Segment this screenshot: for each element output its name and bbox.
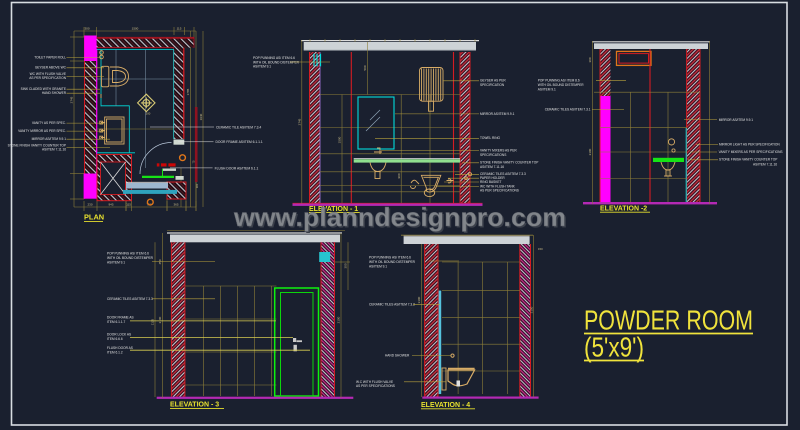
svg-text:HAND SHOWER: HAND SHOWER: [42, 91, 67, 95]
svg-text:WITH OIL BOUND DISTEMPER: WITH OIL BOUND DISTEMPER: [369, 260, 416, 264]
svg-text:CERAMIC TILES AS/ITEM 7.3.3: CERAMIC TILES AS/ITEM 7.3.3: [369, 302, 415, 306]
svg-text:115: 115: [177, 27, 182, 31]
svg-text:3100: 3100: [417, 296, 421, 303]
svg-text:2100: 2100: [337, 316, 341, 323]
svg-text:ELEVATION -2: ELEVATION -2: [600, 206, 647, 213]
svg-text:ELEVATION - 4: ELEVATION - 4: [421, 402, 470, 409]
svg-text:TOILET PAPER ROLL: TOILET PAPER ROLL: [34, 55, 66, 59]
svg-text:200: 200: [146, 112, 151, 116]
svg-text:3150: 3150: [529, 306, 533, 313]
svg-text:www.planndesignpro.com: www.planndesignpro.com: [233, 202, 566, 232]
svg-text:GEYSER ABOVE WC: GEYSER ABOVE WC: [35, 66, 67, 70]
svg-text:AS/ITEM 9.1: AS/ITEM 9.1: [538, 87, 556, 91]
svg-text:ITEM 6.1.1.7: ITEM 6.1.1.7: [107, 320, 125, 324]
svg-text:ITEM 6.1.2: ITEM 6.1.2: [107, 350, 123, 354]
svg-text:AS/ITEM 9.1: AS/ITEM 9.1: [369, 264, 387, 268]
svg-text:365: 365: [173, 203, 178, 207]
svg-text:POP PUNNING AS/ ITEM 8.6: POP PUNNING AS/ ITEM 8.6: [538, 79, 580, 83]
svg-text:1500: 1500: [338, 136, 342, 143]
svg-text:115: 115: [126, 203, 131, 207]
svg-text:1500: 1500: [132, 27, 139, 31]
svg-text:RING BASKET: RING BASKET: [480, 180, 501, 184]
svg-text:AS PER SPECIFICATION: AS PER SPECIFICATION: [29, 76, 66, 80]
svg-text:DOOR FRAME AS/ITEM 6.1.1.1: DOOR FRAME AS/ITEM 6.1.1.1: [216, 140, 263, 144]
svg-text:WITH OIL BOUND DISTEMPER: WITH OIL BOUND DISTEMPER: [253, 60, 300, 64]
svg-text:STONE FINISH VANITY COUNTER TO: STONE FINISH VANITY COUNTER TOP: [719, 158, 777, 162]
svg-text:HAND SHOWER: HAND SHOWER: [385, 354, 410, 358]
svg-text:1785: 1785: [186, 88, 190, 95]
svg-text:CERAMIC TILES AS/ITEM 7.3.1: CERAMIC TILES AS/ITEM 7.3.1: [545, 108, 591, 112]
svg-text:MIRROR AS/ITEM 9.9.1: MIRROR AS/ITEM 9.9.1: [480, 112, 515, 116]
svg-text:MIRROR AS/ITEM 9.9.1: MIRROR AS/ITEM 9.9.1: [32, 137, 67, 141]
svg-text:POP PUNNING AS/ ITEM 6.6: POP PUNNING AS/ ITEM 6.6: [253, 56, 295, 60]
svg-text:300: 300: [588, 57, 592, 62]
svg-text:MIRROR AS/ITEM 9.9.1: MIRROR AS/ITEM 9.9.1: [719, 118, 754, 122]
svg-text:2745: 2745: [297, 118, 301, 125]
svg-text:2100: 2100: [158, 316, 162, 323]
svg-text:PLAN: PLAN: [84, 213, 104, 222]
svg-text:POP PUNNING AS/ ITEM 6.6: POP PUNNING AS/ ITEM 6.6: [107, 252, 149, 256]
svg-text:900: 900: [397, 173, 401, 178]
svg-text:VANITY MIXERS AS PER SPECIFICA: VANITY MIXERS AS PER SPECIFICATIONS: [719, 150, 783, 154]
svg-text:WITH OIL BOUND DISTEMPER: WITH OIL BOUND DISTEMPER: [107, 256, 154, 260]
svg-text:AS/ITEM 7.11.16: AS/ITEM 7.11.16: [480, 165, 504, 169]
svg-text:VANITY MIRROR AS PER SPEC.: VANITY MIRROR AS PER SPEC.: [18, 129, 66, 133]
svg-text:AS/ITEM 9.1: AS/ITEM 9.1: [253, 65, 271, 69]
svg-text:2745: 2745: [70, 96, 74, 103]
svg-text:SPECIFICATIONS: SPECIFICATIONS: [480, 153, 506, 157]
svg-text:FLUSH DOOR AS/ITEM 6.1.1: FLUSH DOOR AS/ITEM 6.1.1: [215, 166, 259, 170]
svg-text:AS PER SPECIFICATIONS: AS PER SPECIFICATIONS: [480, 189, 519, 193]
svg-text:VANITY MIXERS AS PER: VANITY MIXERS AS PER: [480, 148, 517, 152]
svg-text:450: 450: [158, 259, 162, 264]
svg-text:(5'x9'): (5'x9'): [584, 332, 644, 363]
svg-text:FLUSH DOOR AS: FLUSH DOOR AS: [107, 346, 133, 350]
svg-text:AS/ITEM 9.1: AS/ITEM 9.1: [107, 260, 125, 264]
svg-text:DOOR FRAME AS: DOOR FRAME AS: [107, 316, 134, 320]
svg-text:300: 300: [344, 263, 348, 268]
svg-text:SPECIFICATION: SPECIFICATION: [480, 83, 505, 87]
svg-text:230: 230: [87, 203, 92, 207]
svg-text:WITH OIL BOUND DISTEMPER: WITH OIL BOUND DISTEMPER: [538, 83, 585, 87]
svg-text:1940: 1940: [199, 113, 203, 120]
svg-text:1125: 1125: [151, 318, 155, 325]
svg-text:POP PUNNING AS/ ITEM 6.6: POP PUNNING AS/ ITEM 6.6: [369, 256, 411, 260]
svg-text:ELEVATION - 3: ELEVATION - 3: [170, 402, 219, 409]
svg-text:500: 500: [363, 65, 367, 70]
svg-text:300: 300: [195, 183, 199, 188]
svg-text:CERAMIC TILES AS/ITEM 7.3.3: CERAMIC TILES AS/ITEM 7.3.3: [107, 297, 153, 301]
svg-text:2100: 2100: [588, 148, 592, 155]
svg-text:DOOR LOCK AS: DOOR LOCK AS: [107, 333, 131, 337]
svg-text:TOWEL RING: TOWEL RING: [480, 136, 501, 140]
svg-text:AS/ITEM 7.11.16: AS/ITEM 7.11.16: [42, 147, 66, 151]
svg-text:MIRROR LIGHT AS PER SPECIFICAT: MIRROR LIGHT AS PER SPECIFICATION: [719, 142, 780, 146]
svg-text:W.C WITH FLUSH VALVE: W.C WITH FLUSH VALVE: [356, 380, 393, 384]
svg-text:GEYSER AS PER: GEYSER AS PER: [480, 79, 506, 83]
svg-text:VANITY AS PER SPEC.: VANITY AS PER SPEC.: [32, 121, 66, 125]
svg-text:945: 945: [108, 203, 113, 207]
svg-text:AS PER SPECIFICATIONS: AS PER SPECIFICATIONS: [356, 384, 395, 388]
svg-text:ITEM 6.6.6: ITEM 6.6.6: [107, 337, 123, 341]
svg-text:150: 150: [538, 247, 543, 251]
svg-text:AS/ITEM 7.11.16: AS/ITEM 7.11.16: [753, 162, 777, 166]
svg-text:CERAMIC TILE AS/ITEM 7.3.4: CERAMIC TILE AS/ITEM 7.3.4: [216, 125, 261, 129]
svg-text:300: 300: [84, 27, 89, 31]
